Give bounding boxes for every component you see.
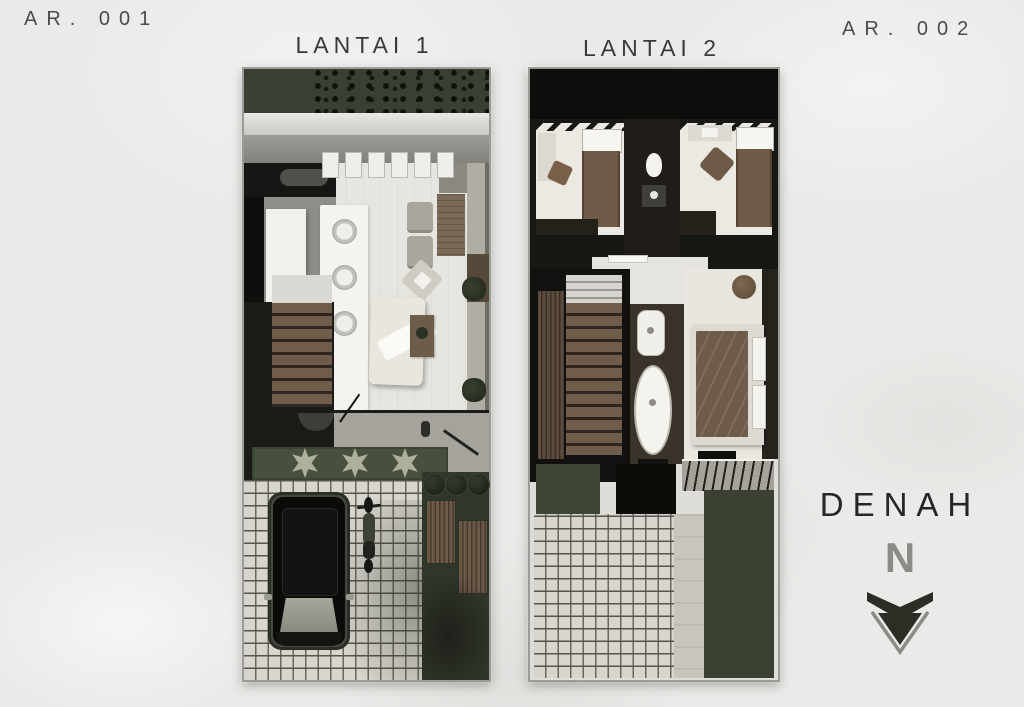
bar-stool — [391, 152, 408, 178]
bed-pillow — [582, 129, 622, 153]
car-roof — [282, 508, 338, 596]
plan2-title: LANTAI 2 — [528, 35, 776, 62]
sheet-code-right: AR. 002 — [842, 18, 1012, 41]
person-figure — [421, 421, 430, 437]
table-plate — [332, 219, 357, 244]
bed-blanket — [736, 149, 772, 227]
car-mirror — [264, 594, 272, 600]
roof-foliage — [314, 69, 489, 113]
motorcycle-seat — [363, 541, 375, 559]
bar-stool — [322, 152, 339, 178]
table-plate — [332, 265, 357, 290]
reading-chair — [732, 275, 756, 299]
sheet-code-left: AR. 001 — [24, 8, 159, 31]
corridor-door — [608, 255, 648, 263]
bed-pillow — [736, 127, 774, 151]
north-arrow-icon — [865, 592, 935, 656]
garden-tree — [423, 473, 446, 496]
garden-deck-bench — [427, 501, 455, 563]
bar-stool — [345, 152, 362, 178]
bar-stool — [437, 152, 454, 178]
garden-foliage-shadow — [422, 569, 489, 680]
bed-pillow — [752, 337, 766, 381]
garden-tree — [445, 473, 468, 496]
bar-stool — [368, 152, 385, 178]
concrete-gutter — [674, 514, 704, 678]
staircase — [272, 303, 332, 407]
vanity-faucet — [647, 327, 654, 334]
console-rug — [437, 194, 465, 256]
front-wall-line — [334, 410, 489, 413]
potted-plant — [462, 378, 486, 402]
bed-blanket — [582, 151, 620, 227]
bathtub — [636, 367, 670, 453]
north-label: N — [818, 534, 982, 582]
laundry-line — [682, 459, 774, 491]
balcony-planter — [536, 464, 600, 514]
toilet — [646, 153, 662, 177]
stair-wood-wall — [538, 291, 564, 459]
side-table-plant — [416, 327, 428, 339]
wc-sink — [650, 191, 658, 199]
desk-pad — [702, 128, 718, 137]
stair-landing — [272, 275, 332, 303]
potted-plant — [462, 277, 486, 301]
car-hood — [276, 632, 342, 646]
carport-roof-paving — [534, 514, 674, 678]
void-roof-block — [616, 464, 676, 514]
bedroom-cabinet — [680, 211, 716, 235]
bathtub-drain — [649, 399, 656, 406]
front-roof-band — [530, 69, 778, 119]
green-roof — [704, 490, 774, 678]
car-mirror — [346, 594, 354, 600]
bed-pillow — [752, 385, 766, 429]
car-windshield — [280, 598, 338, 632]
armchair — [407, 202, 433, 233]
floorplan-lantai-1 — [242, 67, 491, 682]
motorcycle-front-wheel — [364, 497, 373, 513]
motorcycle-rear-wheel — [364, 559, 373, 573]
master-bed-duvet — [696, 331, 748, 437]
bar-stools-row — [322, 152, 454, 176]
table-plate — [332, 311, 357, 336]
rear-path-light — [244, 113, 489, 135]
bar-stool — [414, 152, 431, 178]
legend-title: DENAH — [818, 486, 982, 524]
plan1-title: LANTAI 1 — [242, 32, 487, 59]
staircase — [566, 303, 622, 455]
kitchen-sink — [280, 169, 328, 186]
floorplan-lantai-2 — [528, 67, 780, 682]
stair-top-treads — [566, 275, 622, 303]
tree-shadow — [342, 500, 422, 680]
car — [268, 492, 350, 650]
bedroom-wardrobe — [536, 219, 598, 235]
motorcycle — [356, 497, 382, 577]
garden-tree — [467, 473, 490, 496]
